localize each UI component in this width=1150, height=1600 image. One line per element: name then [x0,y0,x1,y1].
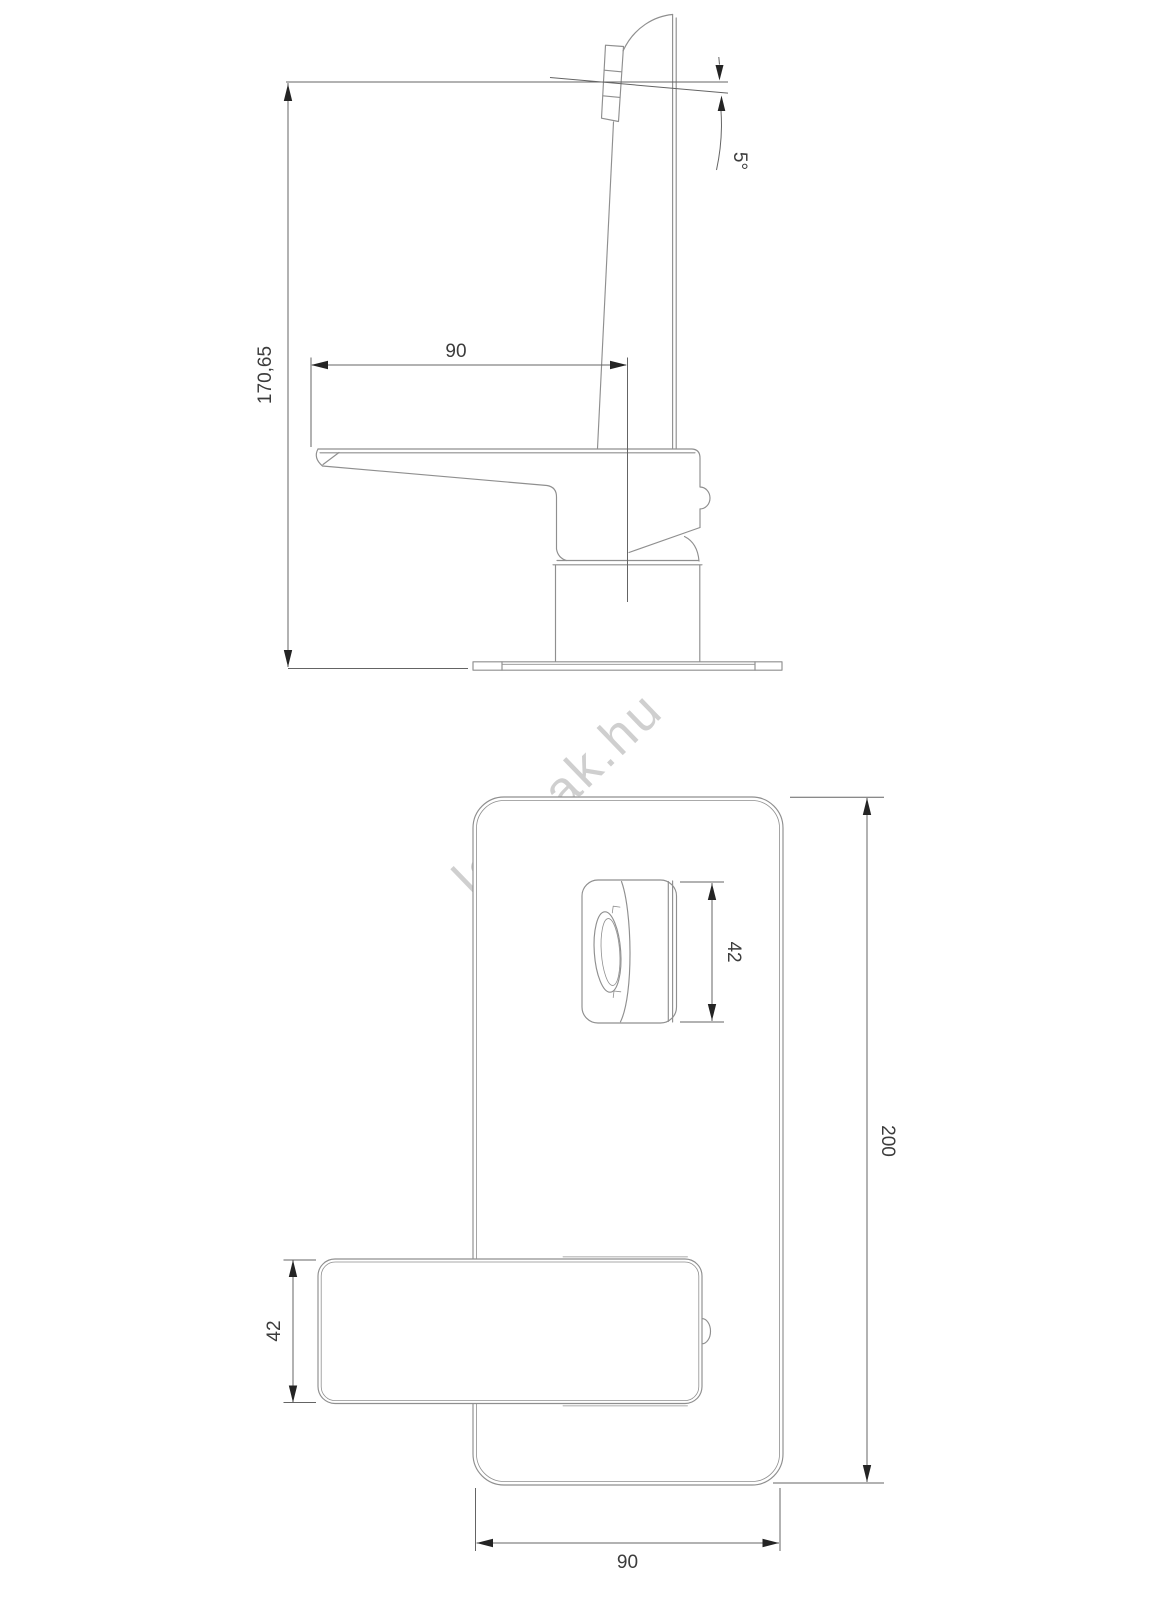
top-view-spout-outline [582,880,677,1023]
dim-height-label: 170,65 [255,346,276,404]
side-view-handle-outline [316,449,710,561]
dim-plate-length: 200 [773,797,898,1483]
dim-angle: 5° [550,57,750,170]
dim-reach-label: 90 [445,341,466,362]
top-view: 200 42 [264,797,898,1573]
side-view: 170,65 90 5° [255,15,782,671]
side-view-base-plate-outline [473,662,782,670]
dim-handle-width-label: 42 [264,1320,285,1341]
dim-angle-label: 5° [729,152,750,170]
dim-plate-width-label: 90 [617,1552,638,1573]
technical-drawing-page: 170,65 90 5° lampak.hu [0,0,1150,1600]
dim-reach: 90 [311,341,628,602]
side-view-spout-outline [598,15,677,449]
top-view-handle-outline [318,1257,711,1406]
technical-drawing-canvas: 170,65 90 5° lampak.hu [0,0,1150,1600]
dim-handle-width: 42 [264,1260,316,1403]
dim-spout-width-label: 42 [723,941,744,962]
dim-plate-length-label: 200 [877,1125,898,1157]
dim-plate-width: 90 [476,1488,781,1573]
dim-height: 170,65 [255,82,728,669]
